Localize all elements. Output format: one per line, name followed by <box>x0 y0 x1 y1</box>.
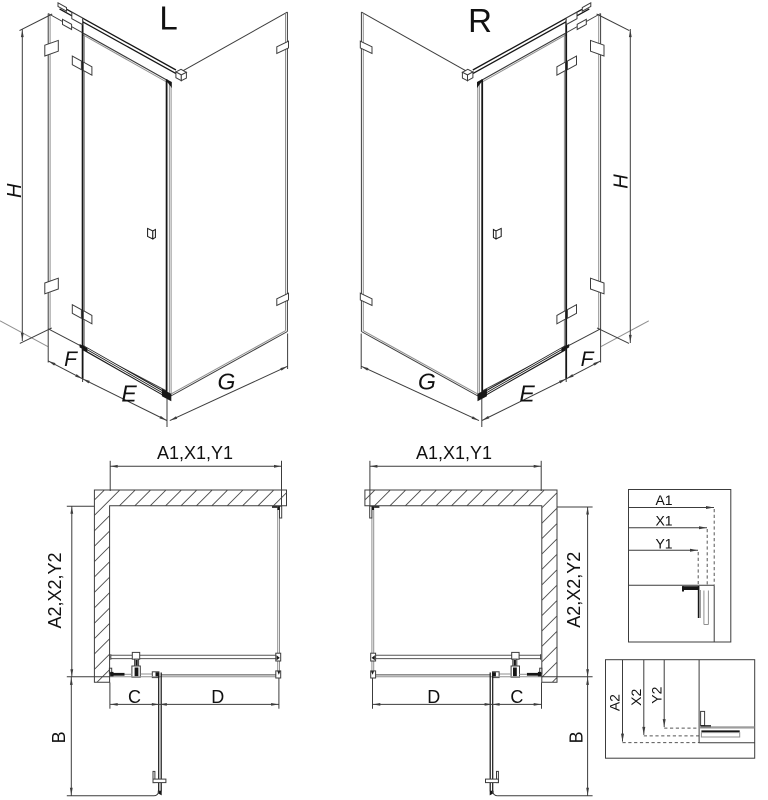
svg-text:F: F <box>581 348 595 371</box>
svg-text:D: D <box>427 687 440 707</box>
svg-text:Y2: Y2 <box>648 686 664 703</box>
svg-text:F: F <box>64 348 78 371</box>
svg-text:H: H <box>611 174 633 189</box>
svg-text:L: L <box>159 0 177 37</box>
svg-text:G: G <box>418 369 436 395</box>
svg-text:X2: X2 <box>628 689 644 706</box>
svg-text:G: G <box>218 369 236 395</box>
svg-text:A1,X1,Y1: A1,X1,Y1 <box>157 443 233 463</box>
svg-text:E: E <box>519 381 535 407</box>
svg-text:A2,X2,Y2: A2,X2,Y2 <box>564 552 584 628</box>
svg-text:H: H <box>4 183 26 198</box>
svg-text:A1,X1,Y1: A1,X1,Y1 <box>416 443 492 463</box>
svg-text:X1: X1 <box>655 513 672 529</box>
svg-text:D: D <box>211 687 224 707</box>
svg-text:B: B <box>49 731 69 743</box>
svg-text:E: E <box>121 381 137 407</box>
svg-text:B: B <box>567 731 587 743</box>
svg-text:C: C <box>510 687 523 707</box>
svg-text:Y1: Y1 <box>655 536 672 552</box>
svg-text:R: R <box>468 2 492 39</box>
svg-text:A1: A1 <box>655 492 672 508</box>
svg-text:C: C <box>128 687 141 707</box>
svg-text:A2,X2,Y2: A2,X2,Y2 <box>45 552 65 628</box>
svg-text:A2: A2 <box>606 694 622 711</box>
